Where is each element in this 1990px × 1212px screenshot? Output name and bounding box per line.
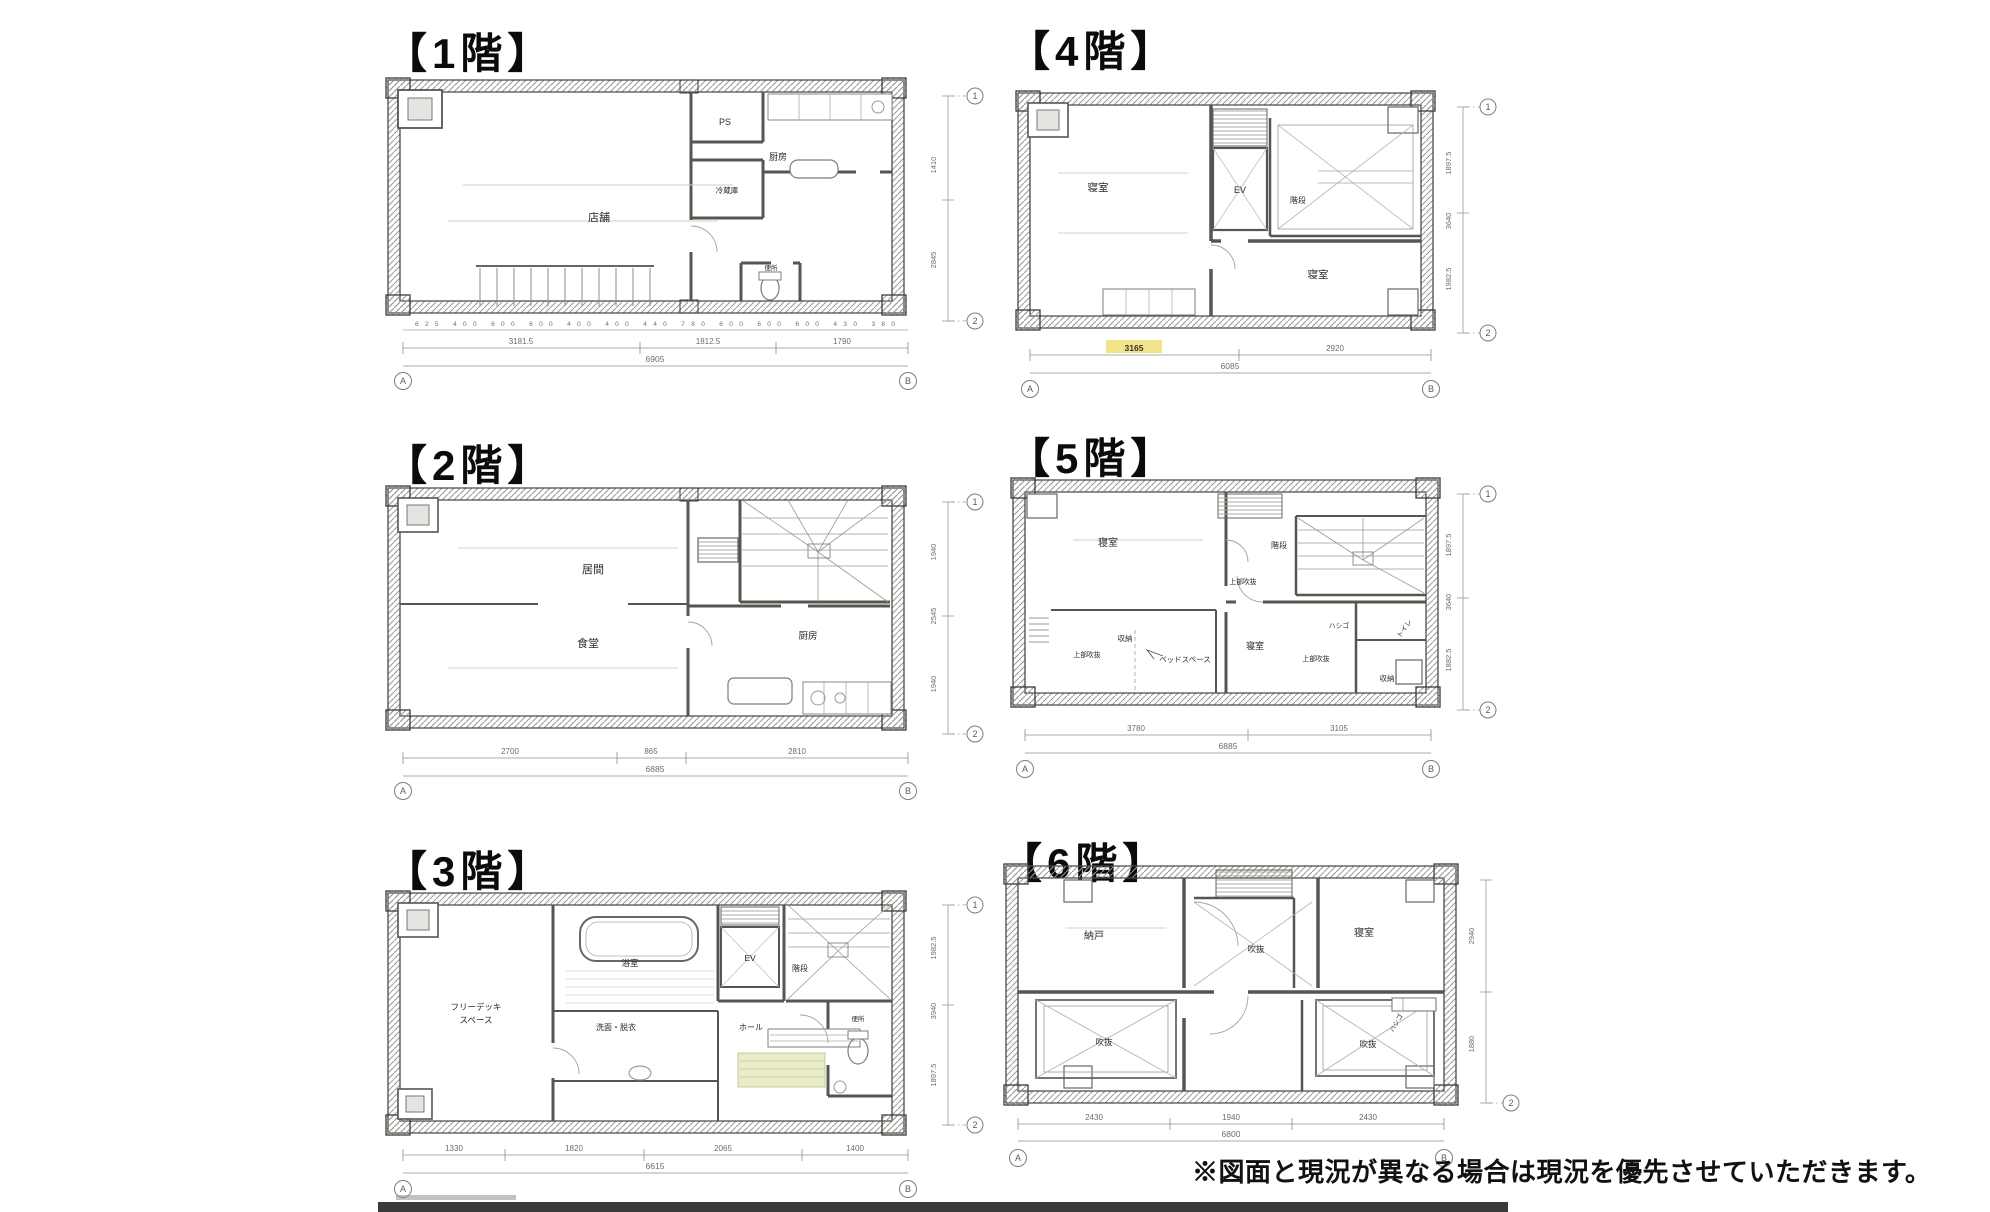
room-label: ハシゴ bbox=[1387, 1012, 1405, 1034]
dim-segment: 3105 bbox=[1330, 724, 1348, 733]
room-label: 寝室 bbox=[1246, 640, 1264, 651]
dims-right-1f: 1410 2845 1 2 bbox=[929, 88, 983, 329]
dims-right-6f: 2940 1880 2 bbox=[1467, 880, 1519, 1111]
room-label: 店舗 bbox=[588, 210, 610, 224]
room-label: 上部吹抜 bbox=[1073, 650, 1100, 659]
dim-right: 1897.5 bbox=[1444, 152, 1453, 175]
scan-artifact bbox=[396, 1195, 516, 1200]
dim-right: 1940 bbox=[929, 676, 938, 693]
room-label: 便所 bbox=[852, 1014, 866, 1023]
dim-segment: 2430 bbox=[1085, 1113, 1103, 1122]
floor-title-4f: 【4階】 bbox=[1008, 18, 1177, 79]
room-label: EV bbox=[1234, 185, 1246, 195]
partitions-5f bbox=[1051, 492, 1426, 693]
stairs-1f bbox=[476, 266, 654, 306]
dim-right: 1897.5 bbox=[929, 1064, 938, 1087]
stair-void-4f bbox=[1278, 125, 1413, 229]
floor-title-3f: 【3階】 bbox=[385, 838, 554, 899]
floor-plan-4f-drawing: 寝室 EV 階段 寝室 1897.5 3640 1982.5 1 2 3165 bbox=[1018, 93, 1518, 408]
dim-right: 3640 bbox=[1444, 213, 1453, 230]
dim-total: 6800 bbox=[1222, 1129, 1241, 1139]
dim-segment: 2065 bbox=[714, 1144, 732, 1153]
axis-marker-2: 2 bbox=[972, 316, 977, 326]
dims-bottom-2f: 2700 865 2810 6885 A B bbox=[395, 747, 917, 800]
disclaimer-note: ※図面と現況が異なる場合は現況を優先させていただきます。 bbox=[1192, 1152, 1931, 1189]
axis-marker-1: 1 bbox=[1485, 102, 1490, 112]
floor-plan-2f-drawing: 居間 食堂 厨房 1940 2545 1940 1 2 2700 865 2 bbox=[388, 488, 993, 803]
axis-marker-1: 1 bbox=[972, 497, 977, 507]
room-label: 吹抜 bbox=[1095, 1037, 1113, 1047]
dim-total: 6085 bbox=[1221, 361, 1240, 371]
room-label: 厨房 bbox=[769, 151, 787, 162]
axis-marker-1: 1 bbox=[972, 91, 977, 101]
dim-total: 6885 bbox=[646, 764, 665, 774]
axis-marker-a: A bbox=[400, 786, 406, 796]
stairs-2f bbox=[742, 500, 888, 602]
floor-title-5f: 【5階】 bbox=[1008, 425, 1177, 486]
dims-bottom-1f: 625 400 600 600 400 400 440 780 600 600 … bbox=[395, 321, 917, 390]
room-label: 寝室 bbox=[1308, 268, 1329, 281]
room-label: スペース bbox=[460, 1015, 493, 1025]
room-label: 上部吹抜 bbox=[1302, 654, 1329, 663]
axis-marker-b: B bbox=[905, 786, 911, 796]
room-label: 寝室 bbox=[1354, 926, 1374, 939]
axis-marker-2: 2 bbox=[972, 1120, 977, 1130]
room-label: ホール bbox=[739, 1023, 763, 1032]
room-label: EV bbox=[744, 953, 756, 963]
room-label: 寝室 bbox=[1098, 536, 1118, 549]
dim-right: 3640 bbox=[1444, 594, 1453, 611]
room-label: 吹抜 bbox=[1247, 944, 1265, 954]
dim-segment: 3165 bbox=[1125, 343, 1144, 353]
room-label: 便所 bbox=[765, 263, 779, 272]
axis-marker-a: A bbox=[1022, 764, 1028, 774]
dim-right: 1897.5 bbox=[1444, 534, 1453, 557]
floor-panel-3f: 【3階】 bbox=[385, 838, 1005, 1212]
room-label: 冷蔵庫 bbox=[716, 185, 739, 195]
dim-segment: 1820 bbox=[565, 1144, 583, 1153]
axis-marker-b: B bbox=[1428, 384, 1434, 394]
dim-segment: 1330 bbox=[445, 1144, 463, 1153]
axis-marker-a: A bbox=[400, 376, 406, 386]
dim-right: 2940 bbox=[1467, 928, 1476, 945]
axis-marker-b: B bbox=[1428, 764, 1434, 774]
floor-panel-2f: 【2階】 bbox=[385, 432, 1005, 837]
room-label: ハシゴ bbox=[1329, 621, 1350, 630]
dim-segment: 2430 bbox=[1359, 1113, 1377, 1122]
axis-marker-a: A bbox=[1027, 384, 1033, 394]
dim-segment: 2920 bbox=[1326, 344, 1344, 353]
dim-segment: 1812.5 bbox=[696, 337, 721, 346]
dim-segment: 2810 bbox=[788, 747, 806, 756]
room-label: 階段 bbox=[1290, 195, 1306, 205]
partitions-6f bbox=[1018, 878, 1444, 1091]
room-label: 納戸 bbox=[1084, 929, 1104, 942]
stairs-5f bbox=[1298, 518, 1424, 593]
axis-marker-a: A bbox=[400, 1184, 406, 1194]
floor-title-2f: 【2階】 bbox=[385, 432, 554, 493]
fixtures-2f bbox=[448, 538, 891, 714]
fixtures-4f bbox=[1058, 109, 1267, 315]
dim-right: 3940 bbox=[929, 1003, 938, 1020]
room-label: フリーデッキ bbox=[450, 1002, 501, 1012]
floor-plan-3f-drawing: フリーデッキ スペース 浴室 EV 階段 洗面・脱衣 ホール 便所 1982.5… bbox=[388, 893, 993, 1208]
floorplan-sheet: 【1階】 bbox=[0, 0, 1990, 1212]
dim-segment: 1940 bbox=[1222, 1113, 1240, 1122]
axis-marker-2: 2 bbox=[1508, 1098, 1513, 1108]
dim-right: 2845 bbox=[929, 252, 938, 269]
dim-segment: 865 bbox=[644, 747, 658, 756]
room-label: ベッドスペース bbox=[1159, 655, 1211, 664]
dim-small-row: 625 400 600 600 400 400 440 780 600 600 … bbox=[415, 321, 895, 328]
fixtures-1f bbox=[448, 94, 892, 300]
dim-right: 1982.5 bbox=[1444, 268, 1453, 291]
axis-marker-2: 2 bbox=[1485, 328, 1490, 338]
dim-total: 6615 bbox=[646, 1161, 665, 1171]
room-label: 食堂 bbox=[577, 636, 599, 650]
dims-bottom-5f: 3780 3105 6885 A B bbox=[1017, 724, 1440, 778]
dim-segment: 3780 bbox=[1127, 724, 1145, 733]
dim-right: 1982.5 bbox=[929, 937, 938, 960]
axis-marker-b: B bbox=[905, 1184, 911, 1194]
dims-right-4f: 1897.5 3640 1982.5 1 2 bbox=[1444, 99, 1496, 341]
dim-segment: 3181.5 bbox=[509, 337, 534, 346]
room-label: 収納 bbox=[1118, 633, 1133, 643]
dims-right-5f: 1897.5 3640 1882.5 1 2 bbox=[1444, 486, 1496, 718]
dim-right: 1410 bbox=[929, 157, 938, 174]
floor-panel-5f: 【5階】 bbox=[1005, 425, 1545, 825]
axis-marker-2: 2 bbox=[972, 729, 977, 739]
dim-total: 6905 bbox=[646, 354, 665, 364]
room-label: 階段 bbox=[792, 963, 808, 973]
floor-plan-5f-drawing: 寝室 階段 上部吹抜 収納 ベッドスペース 上部吹抜 寝室 上部吹抜 ハシゴ ト… bbox=[1013, 480, 1513, 795]
dims-bottom-4f: 3165 2920 6085 A B bbox=[1022, 340, 1440, 398]
room-label: 収納 bbox=[1380, 673, 1395, 683]
floor-panel-4f: 【4階】 bbox=[1005, 18, 1545, 423]
axis-marker-a: A bbox=[1015, 1153, 1021, 1163]
dim-right: 1940 bbox=[929, 544, 938, 561]
room-label: 厨房 bbox=[798, 630, 817, 642]
walls-6f bbox=[1004, 864, 1458, 1105]
axis-marker-1: 1 bbox=[972, 900, 977, 910]
dim-right: 1880 bbox=[1467, 1036, 1476, 1053]
room-label: PS bbox=[719, 117, 731, 127]
room-label: 吹抜 bbox=[1359, 1039, 1377, 1049]
axis-marker-b: B bbox=[905, 376, 911, 386]
dims-right-3f: 1982.5 3940 1897.5 1 2 bbox=[929, 897, 983, 1133]
scan-edge-bar bbox=[378, 1202, 1508, 1212]
room-label: 階段 bbox=[1271, 540, 1287, 550]
floor-panel-1f: 【1階】 bbox=[385, 20, 1005, 425]
floor-title-1f: 【1階】 bbox=[385, 20, 554, 81]
dims-right-2f: 1940 2545 1940 1 2 bbox=[929, 494, 983, 742]
axis-marker-2: 2 bbox=[1485, 705, 1490, 715]
stairs-3f bbox=[788, 905, 890, 999]
dim-segment: 1400 bbox=[846, 1144, 864, 1153]
dim-segment: 2700 bbox=[501, 747, 519, 756]
dim-right: 1882.5 bbox=[1444, 649, 1453, 672]
fixtures-6f bbox=[1066, 902, 1436, 1034]
floor-plan-6f-drawing: 納戸 吹抜 寝室 吹抜 吹抜 ハシゴ 2940 1880 2 2430 1940… bbox=[1006, 866, 1536, 1181]
fixtures-5f bbox=[1029, 494, 1282, 693]
dim-total: 6885 bbox=[1219, 741, 1238, 751]
room-label: 居間 bbox=[582, 563, 604, 576]
room-label: 上部吹抜 bbox=[1229, 577, 1256, 586]
dim-segment: 1790 bbox=[833, 337, 851, 346]
room-label: 浴室 bbox=[621, 958, 639, 968]
axis-marker-1: 1 bbox=[1485, 489, 1490, 499]
room-label: 寝室 bbox=[1088, 181, 1109, 194]
dim-right: 2545 bbox=[929, 608, 938, 625]
dims-bottom-3f: 1330 1820 2065 1400 6615 A B bbox=[395, 1144, 917, 1198]
room-label: 洗面・脱衣 bbox=[596, 1022, 636, 1032]
room-label: トイレ bbox=[1396, 619, 1414, 640]
floor-plan-1f-drawing: 店舗 PS 冷蔵庫 厨房 便所 1410 2845 1 2 625 400 60… bbox=[388, 80, 993, 395]
